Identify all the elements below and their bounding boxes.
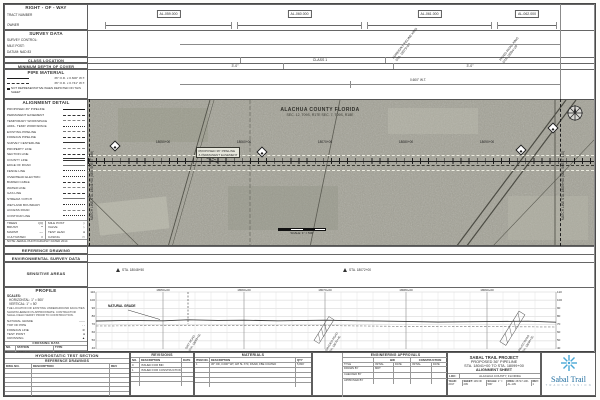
workspace-line-north xyxy=(88,155,594,156)
elev-label: 90 xyxy=(557,306,565,314)
map-scale-label: SCALE: 1" = 500' xyxy=(278,231,326,235)
legend-label: ACCESS ROAD xyxy=(7,208,30,212)
cell: CHECKED BY xyxy=(343,373,373,378)
legend-label: GAS LINE xyxy=(7,191,21,195)
matchline-column-divider xyxy=(560,4,561,99)
survey-band-line xyxy=(180,44,560,45)
col-hdr: STATION xyxy=(15,346,53,350)
legend-label: TEMPORARY WORKSPACE xyxy=(7,119,47,123)
logo-block: Sabal Trail T R A N S M I S S I O N xyxy=(541,352,596,396)
col-hdr: DWG NO. xyxy=(5,364,31,368)
cell: 1 xyxy=(195,363,209,367)
legend-label: PROPERTY LINE xyxy=(7,147,32,151)
legend-label: BURIED CABLE xyxy=(7,180,30,184)
tract-span: AL-061.000 xyxy=(367,4,492,30)
pipe-band-line xyxy=(180,84,560,85)
mini-legend-label: VALVE xyxy=(48,225,58,229)
cell: APPROVED BY xyxy=(343,379,373,384)
map-scale-bar: SCALE: 1" = 500' xyxy=(278,228,326,235)
sensitive-band xyxy=(88,262,594,287)
pipeline-label-line1: PROPOSED 36" PIPELINE xyxy=(199,149,238,153)
profile-station: 18050+00 xyxy=(148,288,178,292)
cell: ISSUED FOR CONSTRUCTION xyxy=(139,368,181,372)
materials-box: MATERIALS ITEM NO. DESCRIPTION QTY 1 36"… xyxy=(194,352,312,396)
sensitive-marker-label: STA. 18072+00 xyxy=(349,268,371,272)
mini-legend-sym: ▭ xyxy=(82,235,85,239)
pipe-sample-2 xyxy=(7,83,29,84)
profile-station: 18060+00 xyxy=(229,288,259,292)
legend-sample xyxy=(63,204,85,205)
reference-drawing-title: REFERENCE DRAWING xyxy=(4,246,88,254)
legend-sample xyxy=(63,158,85,161)
legend-label: EXISTING PIPELINE xyxy=(7,130,36,134)
logo-wordmark: Sabal Trail xyxy=(542,376,595,384)
profile-plot: 110 100 90 80 70 60 50 40 110 100 90 80 … xyxy=(88,287,594,352)
mini-legend-label: CULTIVATED xyxy=(7,235,26,239)
loc-value: ALACHUA COUNTY, FLORIDA xyxy=(460,374,540,378)
elev-label: 70 xyxy=(88,322,95,330)
legend-label: WATER LINE xyxy=(7,186,26,190)
cell: 0 xyxy=(131,363,139,367)
mini-legend-label: MARSH xyxy=(7,230,18,234)
hydro-box: HYDROSTATIC TEST SECTION REFERENCE DRAWI… xyxy=(4,352,130,396)
mini-legend-sym: QQ xyxy=(38,221,43,225)
col-hdr: TYPE xyxy=(53,346,85,350)
sub-hdr: TITLE xyxy=(343,363,373,366)
north-arrow-icon xyxy=(566,104,584,127)
title-block: SABAL TRAIL PROJECT PROPOSED 36" PIPELIN… xyxy=(447,352,541,396)
legend-label: EDGE OF ROAD xyxy=(7,163,31,167)
legend-sample xyxy=(63,126,85,127)
pipe-item-2: 36" O.D. x 0.741" W.T. xyxy=(54,81,85,85)
row-title: RIGHT - OF - WAY xyxy=(5,5,87,11)
tract-number: AL-059.000 xyxy=(156,10,180,18)
legend-sample xyxy=(63,115,85,116)
tract-number: AL-061.000 xyxy=(417,10,441,18)
cell: MDT xyxy=(373,367,393,372)
profile-station: 18070+00 xyxy=(310,288,340,292)
tract-number: AL-062.000 xyxy=(515,10,539,18)
mini-legend-sym: ▷ xyxy=(83,225,85,229)
legend-label: ADDL. TEMP. WORKSPACE xyxy=(7,124,47,128)
profile-legend-sym: ▲ xyxy=(82,336,85,340)
profile-legend-box: PROFILE SCALES: HORIZONTAL: 1" = 500' VE… xyxy=(4,287,88,352)
profile-legend-sym: —— xyxy=(79,319,85,323)
group-hdr-bid: BID xyxy=(373,358,410,362)
milepost-diamond xyxy=(517,146,525,154)
elev-label: 50 xyxy=(88,338,95,346)
elev-label: 60 xyxy=(88,330,95,338)
note-bullet-square xyxy=(7,88,10,91)
profile-legend-sym: - - xyxy=(82,323,85,327)
profile-station: 18080+00 xyxy=(391,288,421,292)
year-value: 2017 xyxy=(449,383,455,386)
col-hdr: DATE xyxy=(181,358,193,362)
pipe-sample-1 xyxy=(7,78,29,79)
tract-span: AL-060.000 xyxy=(237,4,362,30)
sensitive-areas-title: SENSITIVE AREAS xyxy=(4,262,88,287)
match-line-right: MATCH LINE STA. 18099+00 (SEE SHEET 140) xyxy=(561,125,565,220)
col-hdr: QTY xyxy=(295,358,310,362)
cell: ISSUED FOR BID xyxy=(139,363,181,367)
station-ticks xyxy=(88,158,594,164)
profile-note: THE LOCATION OF EXISTING UNDERGROUND FAC… xyxy=(5,306,87,318)
profile-legend-label: TEST POINT xyxy=(7,332,25,336)
pipeline-label: PROPOSED 36" PIPELINE & PERMANENT EASEME… xyxy=(196,147,240,158)
col-hdr: NO. xyxy=(131,358,139,362)
cell: DRAWN BY xyxy=(343,367,373,372)
map-sections: SEC. 12, T09S, R17E SEC. 7, T09S, R18E xyxy=(190,113,450,118)
mini-legend-sym: ~~ xyxy=(39,230,43,234)
col-hdr: DESCRIPTION xyxy=(209,358,295,362)
legend-sample xyxy=(63,193,85,194)
alignment-detail-box: ALIGNMENT DETAIL PROPOSED 36" PIPELINE P… xyxy=(4,99,88,246)
map-station-label: 18070+00 xyxy=(310,140,340,144)
legend-label: PERMANENT EASEMENT xyxy=(7,113,44,117)
sub-hdr: DATE xyxy=(393,363,410,366)
mini-legend-sym: ** xyxy=(41,225,43,229)
group-hdr-construction: CONSTRUCTION xyxy=(410,358,448,362)
natural-grade-label: NATURAL GRADE xyxy=(108,304,136,308)
sabal-trail-logo-icon xyxy=(542,355,595,376)
profile-elev-right: 110 100 90 80 70 60 50 40 xyxy=(557,290,565,355)
milepost-diamond xyxy=(258,148,266,156)
legend-label: COUNTY LINE xyxy=(7,158,28,162)
pipe-band-label: 0.600" W.T. xyxy=(410,78,426,82)
col-hdr: DESCRIPTION xyxy=(31,364,109,368)
legend-label: STREAM / DITCH xyxy=(7,197,32,201)
legend-label: WETLAND BOUNDARY xyxy=(7,203,40,207)
map-station-label: 18050+00 xyxy=(148,140,178,144)
rev-value: 1 xyxy=(533,383,534,386)
match-line-left-rule xyxy=(89,99,90,246)
tract-span: AL-062.000 xyxy=(497,4,557,30)
legend-label: CONTOUR LINE xyxy=(7,214,30,218)
aerial-map xyxy=(88,99,594,246)
mini-legend-label: TREES xyxy=(7,221,17,225)
col-hdr: REV xyxy=(109,364,129,368)
cell: 1 xyxy=(131,368,139,372)
reference-band xyxy=(88,246,594,254)
match-line-right-rule xyxy=(560,99,561,246)
row-box: RIGHT - OF - WAY TRACT NUMBER OWNER xyxy=(4,4,88,30)
mini-legend-label: TEST LEAD xyxy=(48,230,65,234)
legend-sample xyxy=(63,198,85,199)
mini-legend-sym: // xyxy=(41,235,43,239)
legend-sample xyxy=(63,109,85,110)
sub-hdr: INITIAL xyxy=(373,363,393,366)
legend-label: SURVEY CENTERLINE xyxy=(7,141,40,145)
legend-label: FOREIGN PIPELINE xyxy=(7,135,36,139)
elev-label: 80 xyxy=(557,314,565,322)
profile-elev-left: 110 100 90 80 70 60 50 40 xyxy=(88,290,95,355)
alignment-detail-title: ALIGNMENT DETAIL xyxy=(5,100,87,106)
pipe-item-1: 36" O.D. x 0.600" W.T. xyxy=(54,76,85,80)
survey-row-1: SURVEY CONTROL: xyxy=(5,38,87,42)
profile-station: 18090+00 xyxy=(472,288,502,292)
legend-sample xyxy=(63,176,85,177)
legend-sample xyxy=(63,170,85,171)
legend-sample xyxy=(63,120,85,121)
legend-sample xyxy=(63,154,85,155)
elev-label: 110 xyxy=(557,290,565,298)
legend-sample xyxy=(63,142,85,143)
profile-legend-sym: ● xyxy=(83,332,85,336)
depth-value-2: 3'-0" xyxy=(450,64,490,69)
mini-legend-label: BRUSH xyxy=(7,225,18,229)
pipe-material-box: PIPE MATERIAL 36" O.D. x 0.600" W.T. 36"… xyxy=(4,69,88,99)
milepost-diamond xyxy=(549,124,557,132)
profile-legend-label: CROSSING xyxy=(7,336,24,340)
tract-span: AL-059.000 xyxy=(105,4,232,30)
cell xyxy=(181,363,193,367)
legend-sample xyxy=(63,182,85,183)
legend-sample xyxy=(63,137,85,138)
milepost-diamond xyxy=(111,142,119,150)
survey-row-3: DATUM: NAD 83 xyxy=(5,50,87,54)
legend-label: FENCE LINE xyxy=(7,169,25,173)
legend-label: PROPOSED 36" PIPELINE xyxy=(7,107,45,111)
elev-label: 100 xyxy=(88,298,95,306)
pipeline-label-line2: & PERMANENT EASEMENT xyxy=(199,153,238,157)
elev-label: 100 xyxy=(557,298,565,306)
legend-sample xyxy=(63,187,85,188)
cell: 5,800' xyxy=(295,363,310,367)
logo-sub: T R A N S M I S S I O N xyxy=(542,384,595,387)
elev-label: 90 xyxy=(88,306,95,314)
survey-data-box: SURVEY DATA SURVEY CONTROL: MILE POST: D… xyxy=(4,30,88,57)
sheet-type: ALIGNMENT SHEET xyxy=(448,368,540,372)
row-label-tract: TRACT NUMBER xyxy=(5,13,87,17)
environmental-band xyxy=(88,254,594,262)
profile-legend-label: FOREIGN LINE xyxy=(7,328,29,332)
mini-legend-label: MILE POST xyxy=(48,221,65,225)
easement-line xyxy=(88,165,594,166)
tract-number: AL-060.000 xyxy=(287,10,311,18)
sub-hdr: INITIAL xyxy=(410,363,431,366)
mini-legend-sym: ● xyxy=(83,230,85,234)
sensitive-marker xyxy=(343,268,347,272)
profile-legend-label: NATURAL GRADE xyxy=(7,319,33,323)
map-station-label: 18060+00 xyxy=(229,140,259,144)
loc-label: LOC: xyxy=(448,374,460,378)
legend-sample xyxy=(63,131,85,132)
col-hdr: ITEM NO. xyxy=(195,358,209,362)
legend-label: SECTION LINE xyxy=(7,152,29,156)
legend-sample xyxy=(63,215,85,216)
elev-label: 50 xyxy=(557,338,565,346)
workspace-line-south xyxy=(88,170,594,171)
depth-value-1: 3'-0" xyxy=(215,64,255,69)
cell: 36" OD, 0.600" WT, API 5L X70, DSAW, FBE… xyxy=(209,363,295,367)
approvals-box: ENGINEERING APPROVALS BID CONSTRUCTION T… xyxy=(312,352,447,396)
class-value: CLASS 1 xyxy=(300,58,340,63)
sensitive-marker-label: STA. 18048+50 xyxy=(122,268,144,272)
aerial-note: NOTE: AERIAL PHOTOGRAPHY DATED 2014 xyxy=(5,239,87,244)
elev-label: 60 xyxy=(557,330,565,338)
profile-legend-label: TOP OF PIPE xyxy=(7,323,26,327)
survey-row-2: MILE POST: xyxy=(5,44,87,48)
legend-label: OVERHEAD ELECTRIC xyxy=(7,175,41,179)
row-label-owner: OWNER xyxy=(5,23,87,27)
legend-sample xyxy=(63,165,85,166)
pipe-material-note: NOT REPRESENTATIVE WHEN DEPICTED ON THIS… xyxy=(11,87,85,95)
elev-label: 70 xyxy=(557,322,565,330)
legend-sample xyxy=(63,148,85,149)
map-station-label: 18080+00 xyxy=(391,140,421,144)
mini-legend-sym: ◇ xyxy=(83,221,85,225)
environmental-title: ENVIRONMENTAL SURVEY DATA xyxy=(4,254,88,262)
mini-legend-label: CASING xyxy=(48,235,60,239)
map-station-label: 18090+00 xyxy=(472,140,502,144)
alignment-sheet: RIGHT - OF - WAY TRACT NUMBER OWNER SURV… xyxy=(0,0,600,400)
sensitive-marker xyxy=(116,268,120,272)
col-hdr: DESCRIPTION xyxy=(139,358,181,362)
signature-cell xyxy=(313,353,343,397)
legend-sample xyxy=(63,210,85,211)
sub-hdr: DATE xyxy=(431,363,448,366)
col-hdr: NO. xyxy=(5,346,15,350)
survey-title: SURVEY DATA xyxy=(5,31,87,37)
match-line-left: MATCH LINE STA. 18041+00 (SEE SHEET 138) xyxy=(90,125,94,220)
revisions-box: REVISIONS NO. DESCRIPTION DATE 0 ISSUED … xyxy=(130,352,194,396)
profile-legend-sym: ⊘ xyxy=(82,328,85,332)
elev-label: 110 xyxy=(88,290,95,298)
cell xyxy=(181,368,193,372)
border-inner-line xyxy=(594,4,595,396)
elev-label: 80 xyxy=(88,314,95,322)
